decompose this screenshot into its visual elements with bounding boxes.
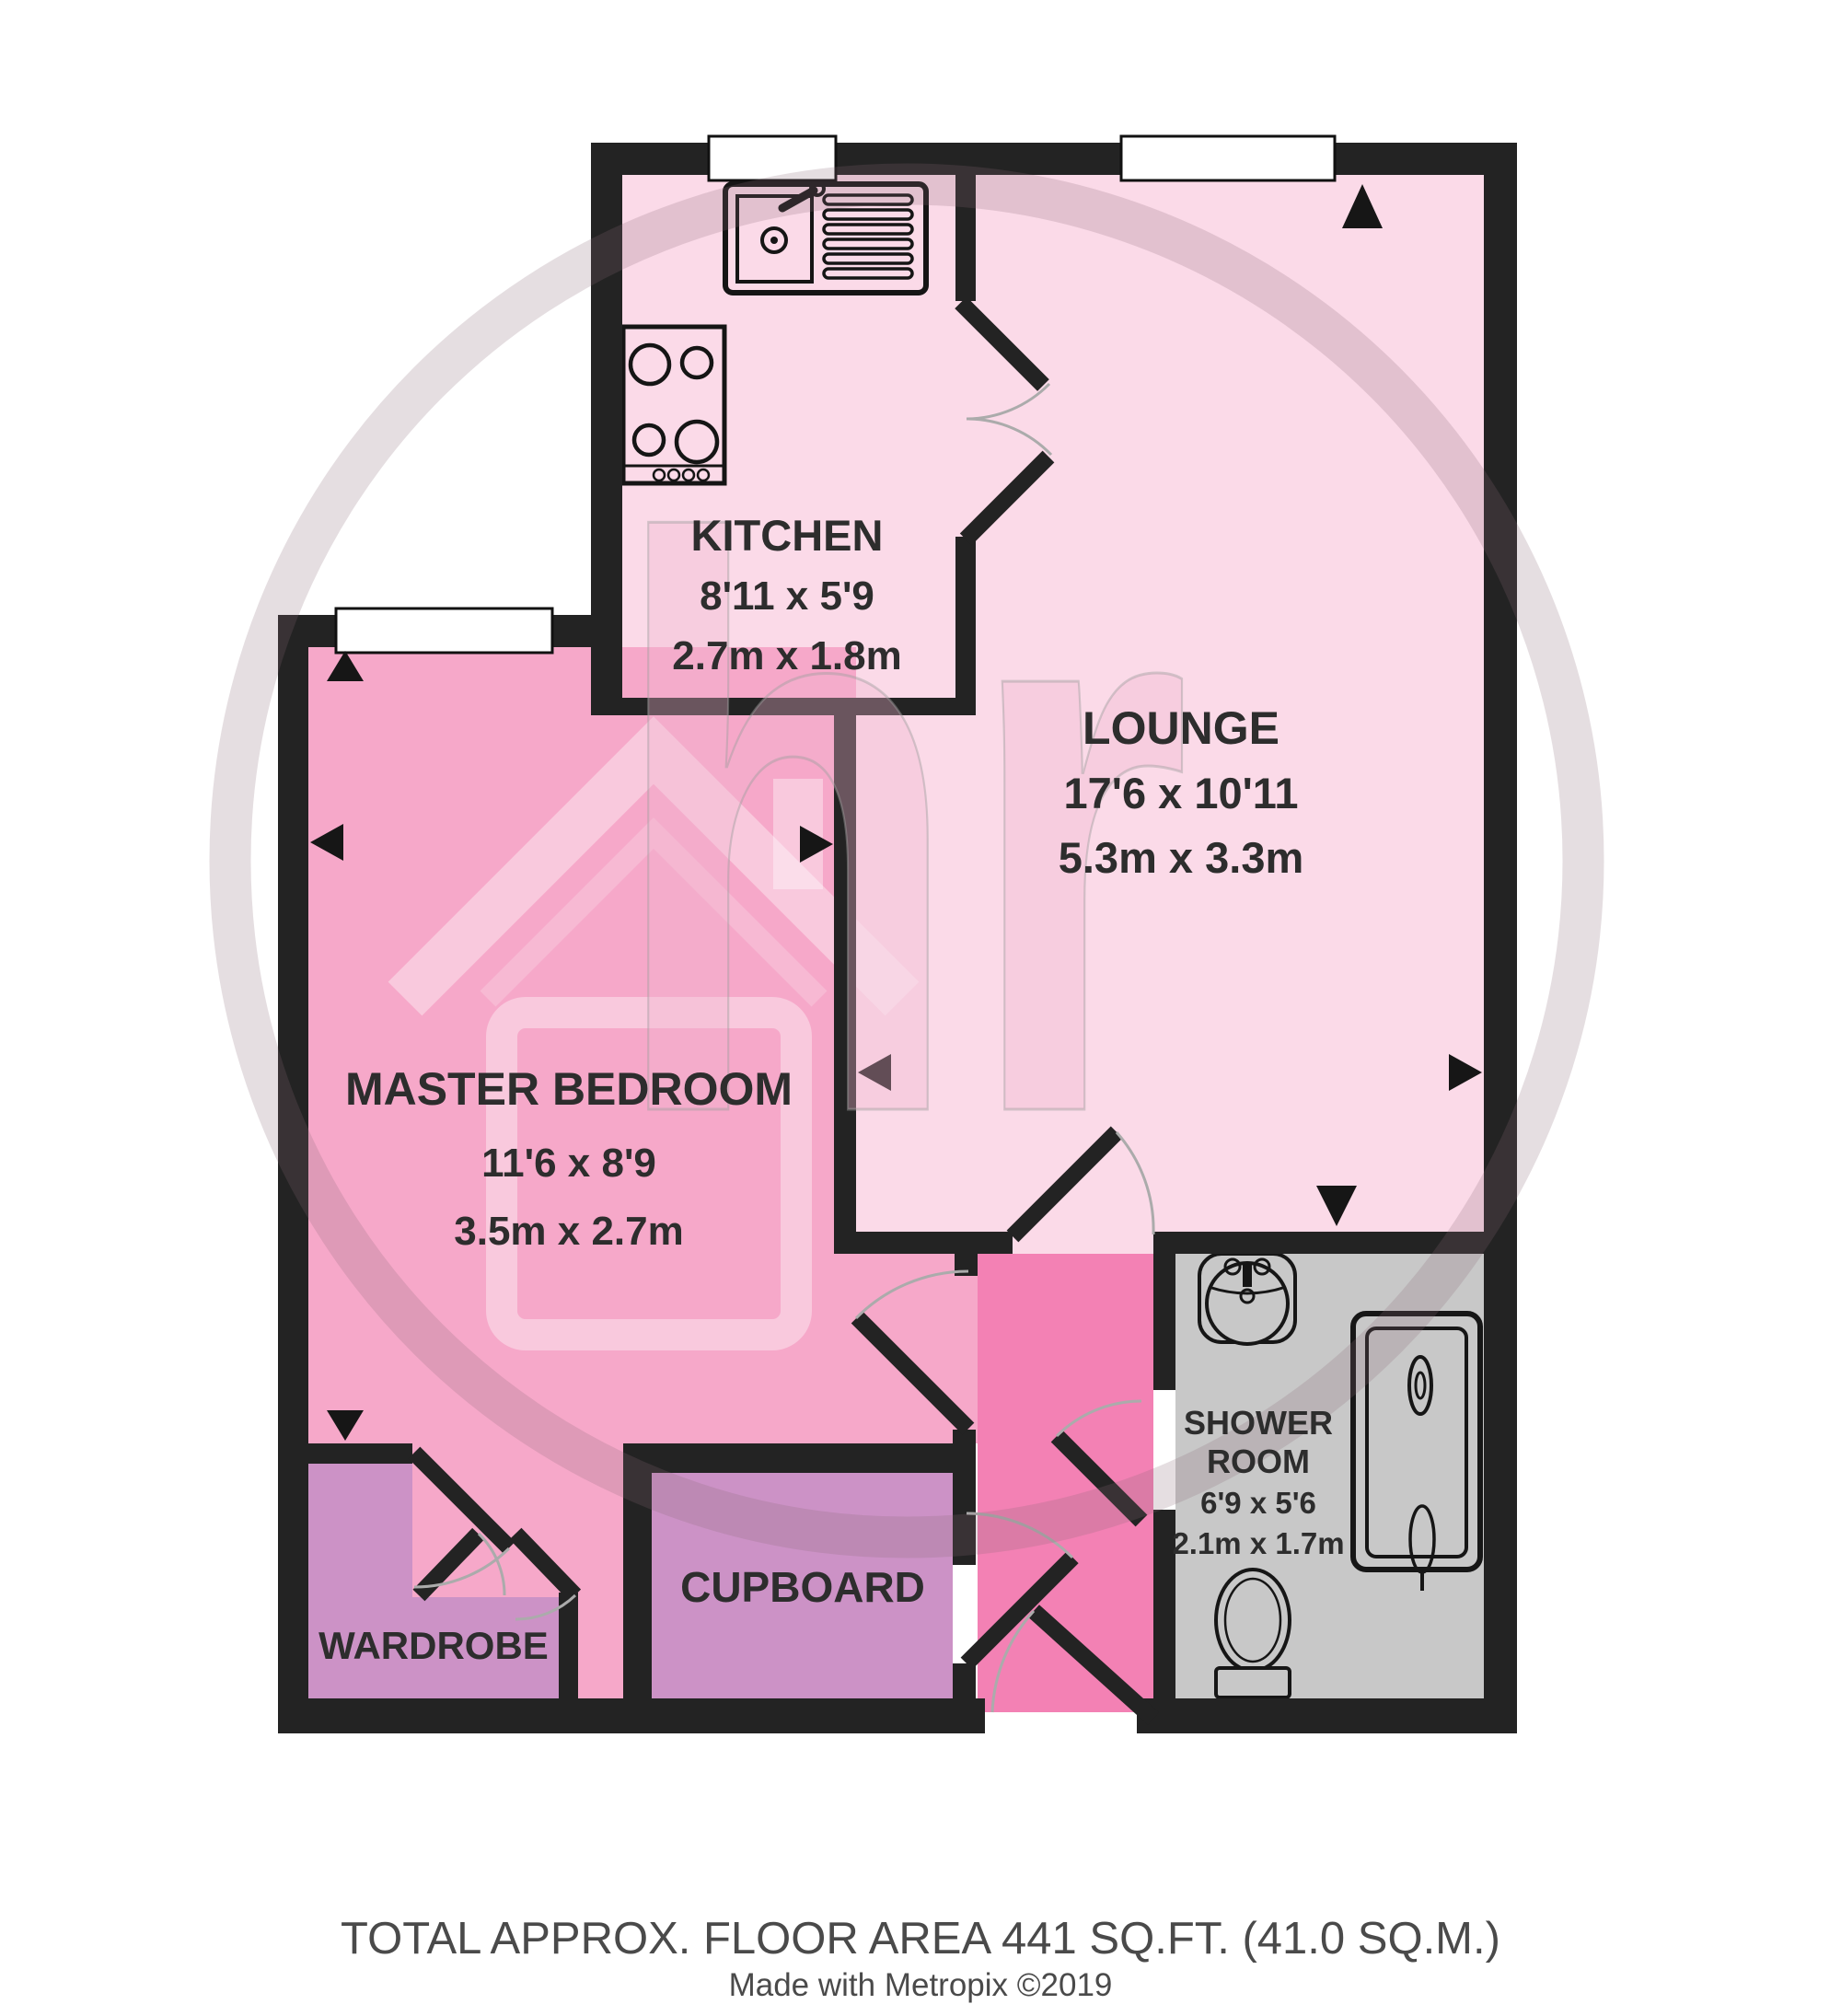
bedroom-window — [336, 608, 552, 653]
shower-room-label-line1: SHOWER — [1184, 1404, 1333, 1442]
cupboard-label: CUPBOARD — [680, 1563, 925, 1611]
wardrobe-east-wall — [559, 1593, 578, 1698]
east-wall — [1484, 143, 1517, 1733]
shower-room-label-line2: ROOM — [1207, 1442, 1310, 1480]
floorplan-page: hr KITCHEN 8'11 x 5'9 2.7m x 1.8m LOUNGE… — [0, 0, 1841, 2016]
kitchen-dim-imperial: 8'11 x 5'9 — [700, 574, 874, 619]
total-area-text: TOTAL APPROX. FLOOR AREA 441 SQ.FT. (41.… — [341, 1914, 1500, 1964]
shower-room-dim-metric: 2.1m x 1.7m — [1172, 1526, 1344, 1560]
lounge-label: LOUNGE — [1083, 702, 1279, 754]
lounge-window — [1121, 136, 1335, 180]
toilet-icon — [1216, 1570, 1290, 1697]
cupboard-north-wall — [623, 1443, 976, 1473]
master-bedroom-label: MASTER BEDROOM — [345, 1063, 793, 1115]
kitchen-label: KITCHEN — [691, 511, 884, 560]
metropix-credit-text: Made with Metropix ©2019 — [729, 1967, 1113, 2003]
kitchen-dim-metric: 2.7m x 1.8m — [672, 633, 902, 678]
floorplan-canvas: hr KITCHEN 8'11 x 5'9 2.7m x 1.8m LOUNGE… — [0, 0, 1841, 2016]
south-wall-right — [1137, 1698, 1517, 1733]
wardrobe-north-wall — [308, 1443, 412, 1464]
footer: TOTAL APPROX. FLOOR AREA 441 SQ.FT. (41.… — [341, 1914, 1500, 2003]
south-wall-left — [278, 1698, 985, 1733]
master-bedroom-dim-imperial: 11'6 x 8'9 — [481, 1141, 656, 1186]
wash-basin-icon — [1199, 1254, 1295, 1344]
lounge-dim-imperial: 17'6 x 10'11 — [1064, 769, 1299, 817]
lounge-dim-metric: 5.3m x 3.3m — [1059, 833, 1304, 882]
shower-room-dim-imperial: 6'9 x 5'6 — [1200, 1486, 1316, 1520]
wardrobe-label: WARDROBE — [318, 1624, 549, 1667]
master-bedroom-dim-metric: 3.5m x 2.7m — [454, 1209, 684, 1254]
